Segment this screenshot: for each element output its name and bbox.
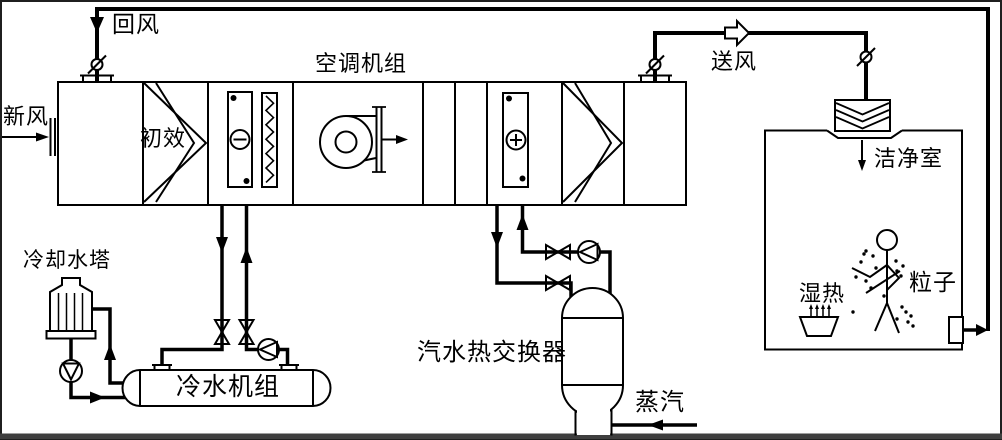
hvac-clean-room-diagram: 回风 新风 空调机组 初效 送风 洁净室 冷却水塔 冷水机组 汽水热交换器 蒸汽…	[0, 0, 1002, 440]
diagram-linework	[0, 0, 1002, 440]
cooling-tower-label: 冷却水塔	[23, 250, 111, 271]
pump-icon	[60, 360, 82, 382]
pump-icon	[258, 339, 279, 360]
clean-room-label: 洁净室	[874, 148, 943, 170]
fresh-air-label: 新风	[3, 106, 49, 128]
supply-air-label: 送风	[711, 51, 757, 73]
droplet-eliminator-icon	[262, 93, 277, 187]
heating-coil-icon	[503, 93, 528, 187]
return-air-label: 回风	[112, 13, 160, 36]
chiller-label: 冷水机组	[176, 375, 280, 400]
heat-exchanger-label: 汽水热交换器	[417, 341, 567, 365]
pump-icon	[578, 241, 600, 263]
humid-heat-label: 湿热	[799, 283, 845, 305]
cooling-coil-icon	[228, 92, 252, 187]
ahu-label: 空调机组	[315, 53, 407, 75]
particles-label: 粒子	[909, 271, 957, 294]
pre-filter-label: 初效	[140, 128, 186, 150]
steam-label: 蒸汽	[635, 391, 685, 415]
hepa-filter-icon	[835, 100, 890, 131]
